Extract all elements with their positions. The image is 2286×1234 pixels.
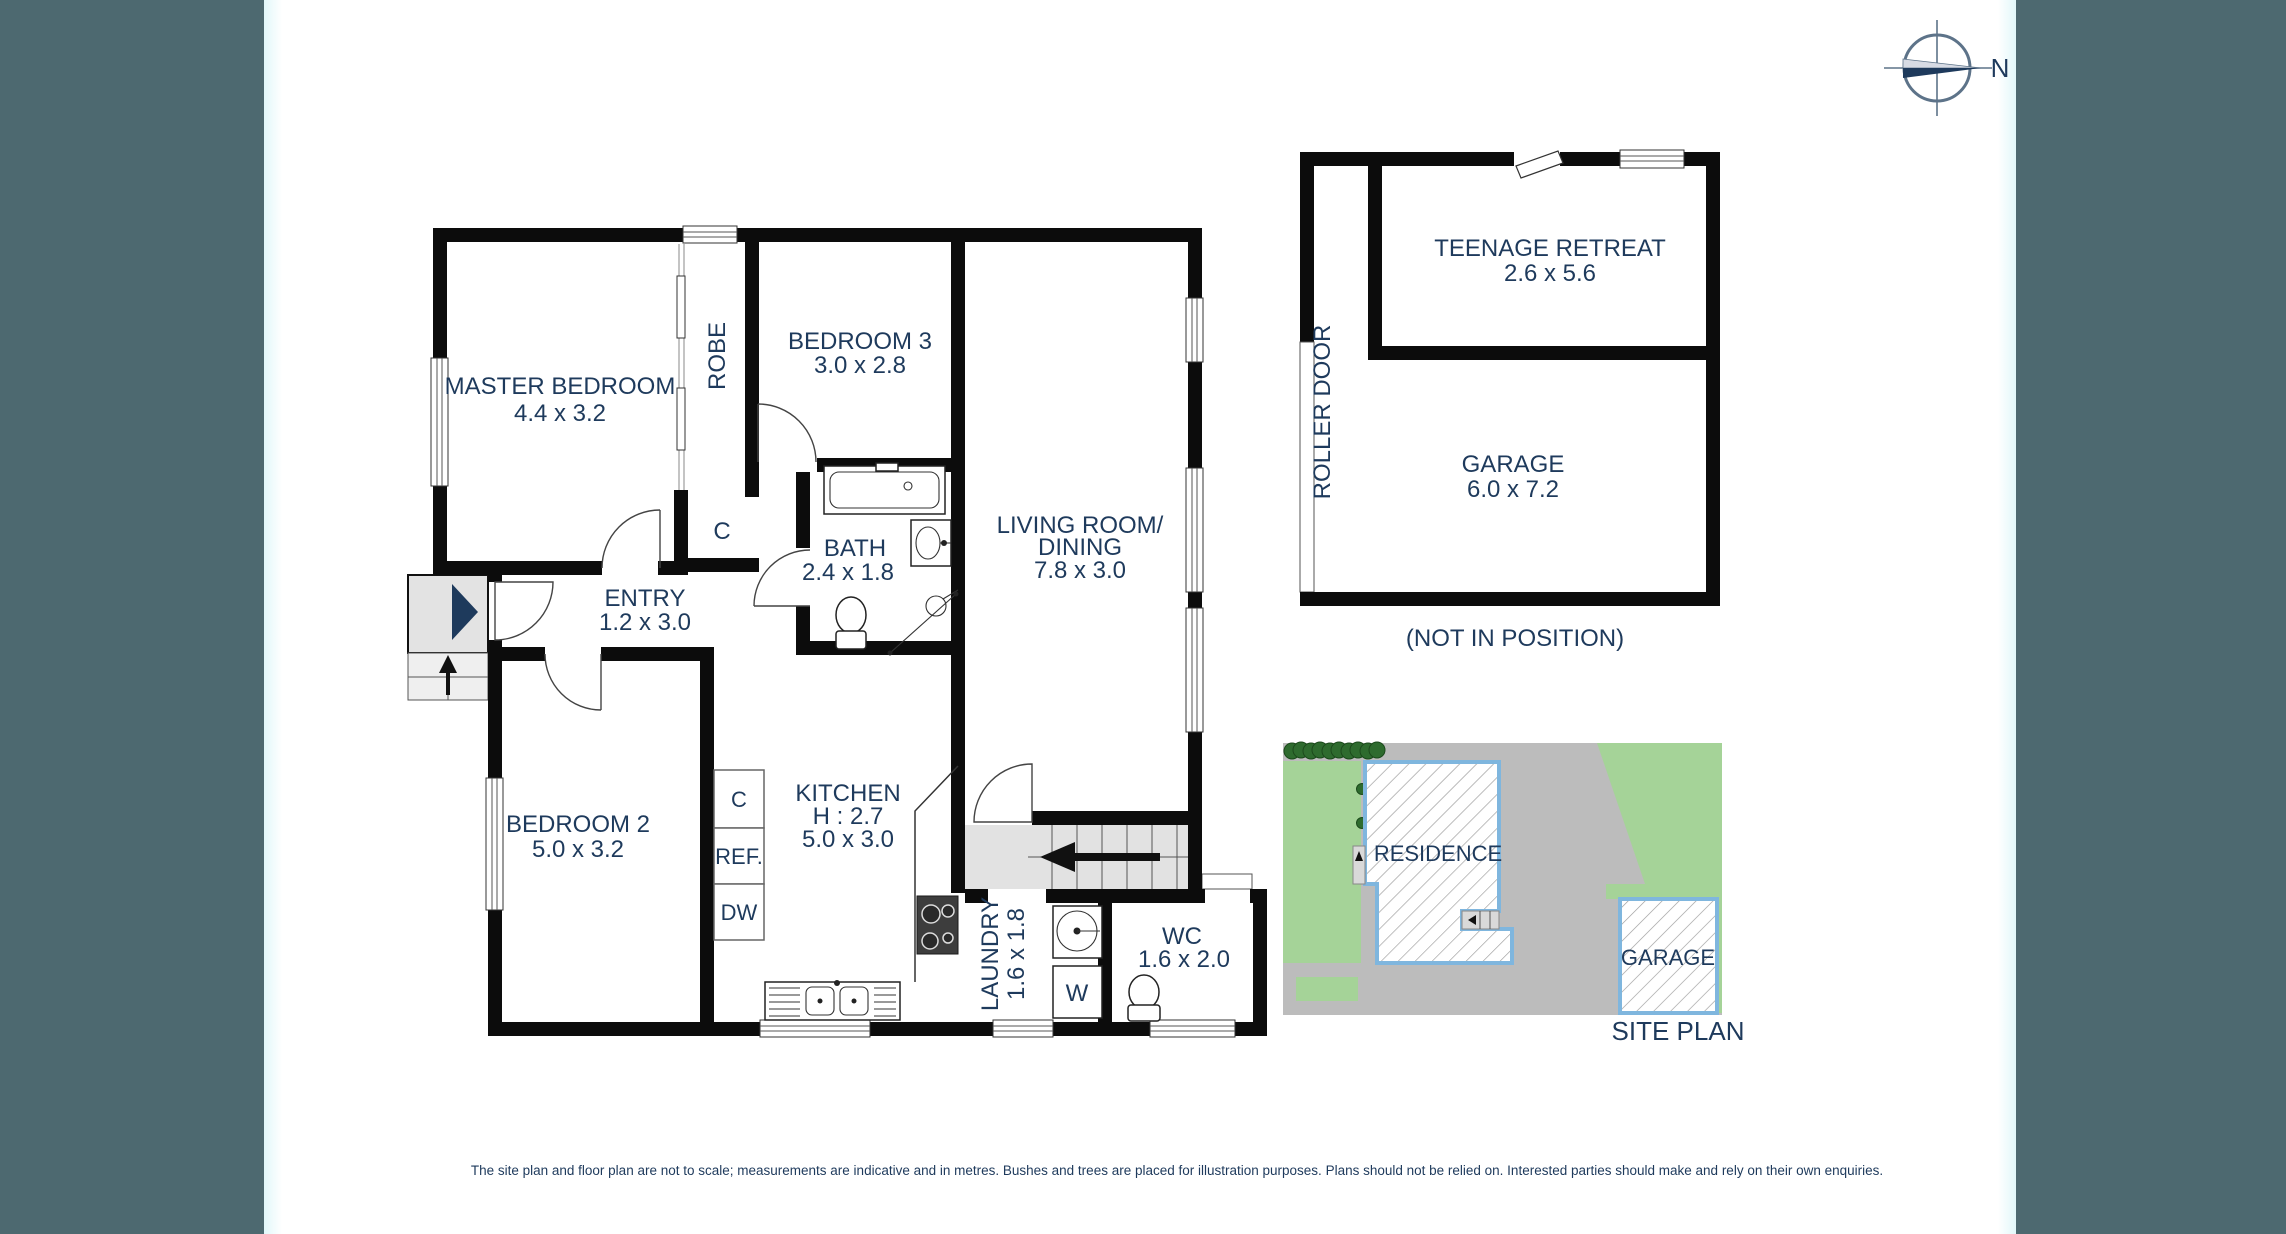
toilet-icon bbox=[836, 597, 866, 649]
label-bedroom2-dims: 5.0 x 3.2 bbox=[532, 836, 624, 863]
retreat-door bbox=[1514, 150, 1563, 178]
site-residence-porch bbox=[1353, 846, 1365, 884]
label-bedroom3-dims: 3.0 x 2.8 bbox=[814, 352, 906, 379]
floorplan-page: N bbox=[0, 0, 2286, 1234]
garage-outbuilding: TEENAGE RETREAT 2.6 x 5.6 GARAGE 6.0 x 7… bbox=[1300, 150, 1720, 652]
label-bath: BATH bbox=[824, 535, 886, 562]
label-wc-dims: 1.6 x 2.0 bbox=[1138, 946, 1230, 973]
label-not-in-position: (NOT IN POSITION) bbox=[1406, 625, 1624, 652]
label-garage-dims: 6.0 x 7.2 bbox=[1467, 476, 1559, 503]
main-floorplan: MASTER BEDROOM 4.4 x 3.2 ROBE BEDROOM 3 … bbox=[408, 226, 1267, 1037]
window-living-2 bbox=[1186, 468, 1203, 592]
site-lawn-strip bbox=[1296, 977, 1358, 1001]
wc-toilet-icon bbox=[1128, 975, 1160, 1021]
window-laundry-bottom bbox=[993, 1020, 1053, 1037]
entry-porch bbox=[408, 575, 488, 700]
label-site-plan-title: SITE PLAN bbox=[1612, 1016, 1745, 1046]
floorplan-canvas: N bbox=[0, 0, 2286, 1234]
site-lawn-left bbox=[1283, 761, 1361, 963]
label-teenage-retreat: TEENAGE RETREAT bbox=[1434, 235, 1666, 262]
robe-sliding-door bbox=[677, 244, 685, 490]
cooktop-icon bbox=[917, 896, 958, 954]
window-wc-bottom bbox=[1150, 1020, 1235, 1037]
back-door-step bbox=[1202, 874, 1252, 889]
window-kitchen-bottom bbox=[760, 1020, 870, 1037]
label-roller-door: ROLLER DOOR bbox=[1309, 325, 1336, 500]
label-washer: W bbox=[1066, 980, 1089, 1007]
front-door bbox=[495, 582, 553, 640]
label-bedroom3: BEDROOM 3 bbox=[788, 328, 932, 355]
label-kitchen-cupboard: C bbox=[731, 787, 747, 812]
label-laundry: LAUNDRY bbox=[977, 897, 1004, 1011]
right-border-panel bbox=[2016, 0, 2286, 1234]
label-garage: GARAGE bbox=[1462, 451, 1565, 478]
label-living-dims: 7.8 x 3.0 bbox=[1034, 557, 1126, 584]
compass-north-label: N bbox=[1991, 53, 2010, 83]
left-edge-fade bbox=[264, 0, 282, 1234]
site-trees-row bbox=[1284, 742, 1385, 759]
label-master-bedroom-dims: 4.4 x 3.2 bbox=[514, 400, 606, 427]
left-border-panel bbox=[0, 0, 264, 1234]
vanity-icon bbox=[911, 520, 951, 566]
bathtub-icon bbox=[824, 463, 945, 514]
right-edge-fade bbox=[1998, 0, 2016, 1234]
label-site-residence: RESIDENCE bbox=[1374, 841, 1502, 866]
label-hall-cupboard: C bbox=[713, 518, 730, 545]
label-site-garage: GARAGE bbox=[1621, 945, 1715, 970]
window-bedroom2-left bbox=[486, 778, 503, 910]
disclaimer-text: The site plan and floor plan are not to … bbox=[471, 1163, 1883, 1178]
label-dishwasher: DW bbox=[721, 900, 758, 925]
laundry-tub-icon bbox=[1053, 906, 1102, 958]
label-master-bedroom: MASTER BEDROOM bbox=[445, 373, 676, 400]
label-robe: ROBE bbox=[704, 322, 731, 390]
label-bath-dims: 2.4 x 1.8 bbox=[802, 559, 894, 586]
window-top bbox=[683, 226, 737, 243]
living-stairs-door bbox=[974, 764, 1032, 822]
site-plan: RESIDENCE GARAGE SITE PLAN bbox=[1283, 742, 1744, 1046]
site-residence-stairs bbox=[1462, 911, 1499, 929]
label-fridge: REF. bbox=[715, 844, 763, 869]
retreat-window bbox=[1620, 150, 1684, 168]
label-kitchen-dims: 5.0 x 3.0 bbox=[802, 826, 894, 853]
room-labels: MASTER BEDROOM 4.4 x 3.2 ROBE BEDROOM 3 … bbox=[445, 322, 1230, 1011]
label-laundry-dims: 1.6 x 1.8 bbox=[1003, 908, 1030, 1000]
label-entry-dims: 1.2 x 3.0 bbox=[599, 609, 691, 636]
compass-icon: N bbox=[1884, 20, 2009, 116]
window-living-3 bbox=[1186, 608, 1203, 732]
window-living-1 bbox=[1186, 298, 1203, 362]
kitchen-sink-icon bbox=[765, 980, 900, 1020]
label-bedroom2: BEDROOM 2 bbox=[506, 811, 650, 838]
internal-stairs bbox=[965, 825, 1200, 889]
label-teenage-retreat-dims: 2.6 x 5.6 bbox=[1504, 260, 1596, 287]
label-entry: ENTRY bbox=[605, 585, 686, 612]
